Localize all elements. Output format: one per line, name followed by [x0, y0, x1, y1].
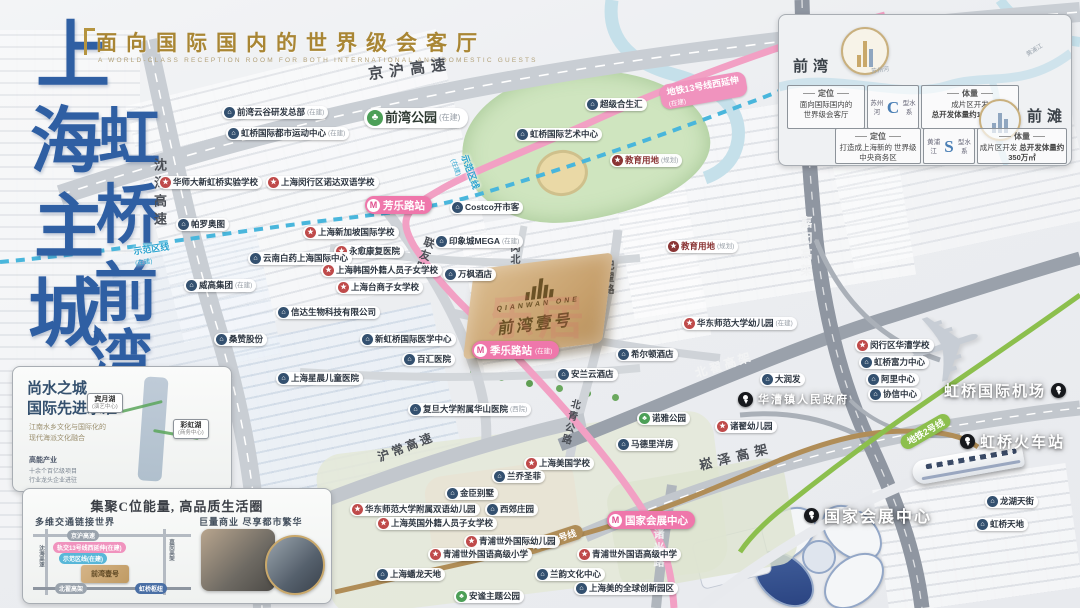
poi-name: 前湾云谷研发总部 — [237, 108, 305, 118]
lake-label: 宾月湖 (演艺中心) — [87, 393, 123, 413]
poi-school: ★青浦世外国语高级中学 — [577, 548, 681, 561]
poi-biz: ⌂协信中心 — [868, 388, 921, 401]
qianwan-water-shape: 苏州河 C 型水系 — [867, 85, 919, 129]
school-icon: ★ — [338, 282, 349, 293]
mini-label-shenhai: 沈海高速 — [37, 545, 45, 567]
school-icon: ★ — [717, 421, 728, 432]
poi-name: 上海韩国外籍人员子女学校 — [336, 266, 438, 276]
poi-name: 华东师范大学附属双语幼儿园 — [365, 505, 476, 515]
building-icon: ⌂ — [250, 253, 261, 264]
qiantan-volume: 体量 成片区开发 总开发体量约350万㎡ — [977, 128, 1067, 164]
brand-character: 主 — [34, 194, 104, 264]
poi-suffix: (在建) — [328, 130, 345, 137]
water-river-name: 苏州河 — [868, 99, 886, 118]
building-icon: ⌂ — [362, 334, 373, 345]
poi-biz: ⌂西郊庄园 — [485, 503, 538, 516]
metro-station-label: M芳乐路站 — [365, 196, 432, 214]
poi-suffix: (规划) — [661, 157, 678, 164]
poi-biz: ⌂桑赞股份 — [214, 333, 267, 346]
poi-biz: ⌂虹桥富力中心 — [859, 356, 929, 369]
poi-name: 教育用地 — [625, 156, 659, 166]
school-icon: ★ — [526, 458, 537, 469]
poi-name: 马德里洋房 — [631, 440, 674, 450]
poi-suffix: (在建) — [776, 320, 793, 327]
positioning-line: 世界级会客厅 — [788, 110, 864, 121]
poi-name: 上海美的全球创新园区 — [589, 584, 674, 594]
road-label: 嘉闵高架 — [798, 216, 815, 280]
qianwan-positioning: 定位 面向国际国内的 世界级会客厅 — [787, 85, 865, 129]
poi-biz: ⌂上海星晨儿童医院 — [276, 372, 363, 385]
poi-biz: ⌂希尔顿酒店 — [616, 348, 678, 361]
building-icon: ⌂ — [587, 99, 598, 110]
poi-school: ★青浦世外国际幼儿园 — [464, 535, 560, 548]
poi-biz: ⌂安兰云酒店 — [556, 368, 618, 381]
poi-biz: ⌂阿里中心 — [866, 373, 919, 386]
poi-name: 安谧主题公园 — [469, 592, 520, 602]
mini-label-beidi: 北翟高架 — [55, 583, 87, 594]
poi-name: 上海英国外籍人员子女学校 — [391, 519, 493, 529]
building-icon: ⌂ — [404, 354, 415, 365]
poi-park: ♣诺雅公园 — [637, 412, 690, 425]
poi-biz: ⌂虹桥国际艺术中心 — [515, 128, 602, 141]
park-suffix: (在建) — [439, 113, 460, 122]
poi-name: 永愈康复医院 — [349, 247, 400, 257]
building-icon: ⌂ — [987, 496, 998, 507]
map-canvas: ✈ QIANWAN ONE 前湾壹号 乐居 上海主城虹桥前湾 面向国际国内的世界… — [0, 0, 1080, 608]
positioning-line: 打造成上海新的 — [839, 143, 892, 152]
water-city-subtitle2: 现代海派文化融合 — [29, 435, 85, 442]
building-icon: ⌂ — [228, 128, 239, 139]
poi-school: ★上海新加坡国际学校 — [303, 226, 399, 239]
major-poi-name: 国家会展中心 — [824, 503, 932, 527]
building-icon: ⌂ — [558, 369, 569, 380]
poi-biz: ⌂万枫酒店 — [443, 268, 496, 281]
poi-school: ★上海韩国外籍人员子女学校 — [321, 264, 442, 277]
poi-name: 复旦大学附属华山医院 — [423, 405, 508, 415]
metro-icon: M — [367, 199, 380, 212]
poi-name: 阿里中心 — [881, 375, 915, 385]
lake-name: 宾月湖 — [94, 396, 115, 403]
park-label: ♣前湾公园(在建) — [364, 108, 468, 128]
poi-biz: ⌂虹桥天地 — [975, 518, 1028, 531]
building-icon: ⌂ — [436, 236, 447, 247]
poi-biz: ⌂印象城MEGA(在建) — [434, 235, 523, 248]
poi-name: 金臣别墅 — [460, 489, 494, 499]
location-pin-icon — [1051, 383, 1066, 398]
poi-name: 青浦世外国语高级小学 — [443, 550, 528, 560]
industry-head: 高能产业 — [29, 455, 57, 465]
major-poi-name: 华漕镇人民政府 — [758, 391, 849, 407]
building-icon: ⌂ — [445, 269, 456, 280]
building-icon: ⌂ — [487, 504, 498, 515]
poi-name: 协信中心 — [883, 390, 917, 400]
poi-name: 兰乔圣菲 — [507, 472, 541, 482]
poi-name: 上海闵行区诺达双语学校 — [281, 178, 375, 188]
poi-name: 百汇医院 — [417, 355, 451, 365]
poi-biz: ⌂超级合生汇 — [585, 98, 647, 111]
metro-station-label: M季乐路站(在建) — [472, 341, 559, 359]
major-poi-name: 虹桥国际机场 — [944, 380, 1046, 401]
mini-road — [33, 534, 191, 537]
mini-label-hub: 虹桥枢纽 — [135, 583, 167, 594]
poi-name: 云南白药上海国际中心 — [263, 254, 348, 264]
mini-label-jiamin: 嘉闵高架 — [167, 539, 175, 561]
mini-label-line13: 轨交13号线西延伸(在建) — [53, 542, 126, 553]
water-shape-suffix: 型水系 — [900, 99, 918, 118]
volume-head: 体量 — [922, 88, 1018, 100]
school-icon: ★ — [268, 177, 279, 188]
poi-biz: ⌂信达生物科技有限公司 — [276, 306, 380, 319]
major-poi-label: 虹桥火车站 — [960, 431, 1065, 452]
poi-name: 虹桥国际都市运动中心 — [241, 129, 326, 139]
lake-label: 彩虹湖 (商务中心) — [173, 419, 209, 439]
poi-name: 威高集团 — [199, 281, 233, 291]
commerce-photo — [201, 529, 275, 591]
volume-line: 总开发体量约350万㎡ — [1008, 143, 1064, 163]
building-icon: ⌂ — [618, 439, 629, 450]
mini-property-logo: 前湾壹号 — [81, 565, 129, 583]
poi-name: 青浦世外国际幼儿园 — [479, 537, 556, 547]
poi-name: 龙湖天街 — [1000, 497, 1034, 507]
poi-biz: ⌂百汇医院 — [402, 353, 455, 366]
poi-school: ★诸翟幼儿园 — [715, 420, 777, 433]
brand-character: 前 — [94, 262, 158, 326]
poi-school: ★上海美国学校 — [524, 457, 594, 470]
station-name: 国家会展中心 — [625, 513, 688, 528]
location-pin-icon — [960, 434, 975, 449]
major-poi-name: 虹桥火车站 — [980, 431, 1065, 452]
poi-suffix: (规划) — [717, 243, 734, 250]
commerce-photo-ring — [265, 535, 325, 595]
water-shape-letter: C — [886, 96, 900, 121]
poi-biz: ⌂大润发 — [760, 373, 805, 386]
poi-name: 教育用地 — [681, 242, 715, 252]
volume-head: 体量 — [978, 131, 1066, 143]
poi-school: ★华东师范大学附属双语幼儿园 — [350, 503, 480, 516]
major-poi-label: 国家会展中心 — [804, 503, 932, 527]
positioning-line: 面向国际国内的 — [788, 100, 864, 111]
water-shape-suffix: 型水系 — [955, 138, 974, 157]
poi-name: 万枫酒店 — [458, 270, 492, 280]
poi-name: 虹桥富力中心 — [874, 358, 925, 368]
school-icon: ★ — [323, 265, 334, 276]
building-icon: ⌂ — [977, 519, 988, 530]
building-icon: ⌂ — [410, 404, 421, 415]
poi-name: 上海美国学校 — [539, 459, 590, 469]
school-icon: ★ — [579, 549, 590, 560]
school-icon: ★ — [352, 504, 363, 515]
poi-biz: ⌂前湾云谷研发总部(在建) — [222, 106, 328, 119]
building-icon: ⌂ — [517, 129, 528, 140]
poi-name: 上海蟠龙天地 — [390, 570, 441, 580]
school-icon: ★ — [684, 318, 695, 329]
poi-biz: ⌂上海美的全球创新园区 — [574, 582, 678, 595]
station-name: 芳乐路站 — [383, 198, 425, 213]
poi-suffix: (西院) — [510, 406, 527, 413]
school-icon: ★ — [160, 177, 171, 188]
poi-biz: ⌂龙湖天街 — [985, 495, 1038, 508]
poi-name: 安兰云酒店 — [571, 370, 614, 380]
building-icon: ⌂ — [178, 219, 189, 230]
poi-school: ★闵行区华漕学校 — [855, 339, 934, 352]
building-icon: ⌂ — [224, 107, 235, 118]
metro-station-label: M国家会展中心 — [607, 511, 695, 529]
c-position-panel: 集聚C位能量, 高品质生活圈 多维交通链接世界 巨量商业 尽享都市繁华 京沪高速… — [22, 488, 332, 604]
gold-corner-mark — [84, 28, 95, 55]
qiantan-positioning: 定位 打造成上海新的 世界级中央商务区 — [835, 128, 921, 164]
mini-road — [45, 529, 48, 595]
poi-biz: ⌂兰乔圣菲 — [492, 470, 545, 483]
building-icon: ⌂ — [762, 374, 773, 385]
poi-school: ★青浦世外国语高级小学 — [428, 548, 532, 561]
poi-biz: ⌂新虹桥国际医学中心 — [360, 333, 456, 346]
poi-school: ★华师大新虹桥实验学校 — [158, 176, 262, 189]
poi-biz: ⌂威高集团(在建) — [184, 279, 256, 292]
building-icon: ⌂ — [868, 374, 879, 385]
school-icon: ★ — [466, 536, 477, 547]
building-icon: ⌂ — [447, 488, 458, 499]
poi-name: 华东师范大学幼儿园 — [697, 319, 774, 329]
building-icon: ⌂ — [278, 307, 289, 318]
location-pin-icon — [738, 392, 753, 407]
qianwan-one-logo-icon — [525, 276, 555, 300]
industry-line: 行业龙头企业进驻 — [29, 475, 77, 484]
building-icon: ⌂ — [537, 569, 548, 580]
poi-edu: ★教育用地(规划) — [610, 154, 682, 167]
poi-name: 虹桥国际艺术中心 — [530, 130, 598, 140]
poi-name: Costco开市客 — [465, 203, 519, 213]
poi-name: 上海星晨儿童医院 — [291, 374, 359, 384]
c-position-title: 集聚C位能量, 高品质生活圈 — [23, 496, 331, 515]
water-city-panel: 尚水之城 国际先进水准 江南水乡文化与国际化的 现代海派文化融合 宾月湖 (演艺… — [12, 366, 232, 492]
transport-head: 多维交通链接世界 — [35, 515, 115, 528]
industry-line: 十余个百亿级项目 — [29, 466, 77, 475]
location-pin-icon — [804, 508, 819, 523]
lake-name: 彩虹湖 — [180, 422, 201, 429]
poi-name: 兰韵文化中心 — [550, 570, 601, 580]
station-name: 季乐路站 — [490, 343, 532, 358]
positioning-head: 定位 — [788, 88, 864, 100]
school-icon: ★ — [857, 340, 868, 351]
poi-suffix: (在建) — [307, 109, 324, 116]
mini-label-jinghu: 京沪高速 — [67, 530, 99, 541]
major-poi-label: 华漕镇人民政府 — [738, 391, 849, 407]
building-icon: ⌂ — [576, 583, 587, 594]
volume-line: 成片区开发 — [980, 143, 1018, 152]
poi-name: 虹桥天地 — [990, 520, 1024, 530]
poi-suffix: (在建) — [235, 282, 252, 289]
poi-name: 桑赞股份 — [229, 335, 263, 345]
poi-biz: ⌂马德里洋房 — [616, 438, 678, 451]
poi-biz: ⌂兰韵文化中心 — [535, 568, 605, 581]
positioning-head: 定位 — [836, 131, 920, 143]
poi-name: 闵行区华漕学校 — [870, 341, 930, 351]
poi-park: ♣安谧主题公园 — [454, 590, 524, 603]
school-icon: ★ — [305, 227, 316, 238]
water-city-subtitle: 江南水乡文化与国际化的 — [29, 424, 106, 431]
poi-name: 新虹桥国际医学中心 — [375, 335, 452, 345]
lake-sub: (商务中心) — [178, 430, 204, 437]
commerce-head: 巨量商业 尽享都市繁华 — [199, 515, 303, 528]
poi-name: 希尔顿酒店 — [631, 350, 674, 360]
building-icon: ⌂ — [377, 569, 388, 580]
poi-school: ★华东师范大学幼儿园(在建) — [682, 317, 797, 330]
qianwan-name: 前湾 — [793, 55, 833, 76]
poi-school: ★上海台商子女学校 — [336, 281, 423, 294]
poi-biz: ⌂虹桥国际都市运动中心(在建) — [226, 127, 349, 140]
tree-icon: ♣ — [367, 110, 383, 126]
poi-name: 华师大新虹桥实验学校 — [173, 178, 258, 188]
education-icon: ★ — [612, 155, 623, 166]
building-icon: ⌂ — [494, 471, 505, 482]
education-icon: ★ — [668, 241, 679, 252]
poi-school: ★上海英国外籍人员子女学校 — [376, 517, 497, 530]
poi-school: ★上海闵行区诺达双语学校 — [266, 176, 379, 189]
station-suffix: (在建) — [535, 345, 552, 355]
poi-biz: ⌂帕罗奥图 — [176, 218, 229, 231]
poi-biz: ⌂上海蟠龙天地 — [375, 568, 445, 581]
poi-biz: ⌂金臣别墅 — [445, 487, 498, 500]
water-shape-letter: S — [943, 135, 954, 160]
building-icon: ⌂ — [870, 389, 881, 400]
poi-suffix: (在建) — [502, 238, 519, 245]
poi-name: 诸翟幼儿园 — [730, 422, 773, 432]
poi-name: 上海新加坡国际学校 — [318, 228, 395, 238]
poi-name: 上海台商子女学校 — [351, 283, 419, 293]
building-icon: ⌂ — [278, 373, 289, 384]
major-poi-label: 虹桥国际机场 — [944, 380, 1066, 401]
building-icon: ⌂ — [618, 349, 629, 360]
school-icon: ★ — [430, 549, 441, 560]
poi-name: 信达生物科技有限公司 — [291, 308, 376, 318]
mini-label-demoline: 示范区线(在建) — [59, 553, 107, 564]
poi-name: 诺雅公园 — [652, 414, 686, 424]
metro-icon: M — [474, 344, 487, 357]
building-icon: ⌂ — [861, 357, 872, 368]
tree-icon: ♣ — [639, 413, 650, 424]
water-city-title: 尚水之城 — [27, 381, 87, 397]
poi-name: 超级合生汇 — [600, 100, 643, 110]
poi-name: 印象城MEGA — [449, 237, 500, 247]
page-subtitle-en: A WORLD-CLASS RECEPTION ROOM FOR BOTH IN… — [98, 57, 538, 64]
building-icon: ⌂ — [452, 202, 463, 213]
road-label: 沈海高速 — [150, 158, 169, 230]
qiantan-name: 前滩 — [1027, 105, 1067, 126]
qiantan-water-shape: 黄浦江 S 型水系 — [923, 128, 975, 164]
park-name: 前湾公园 — [385, 111, 437, 126]
poi-biz: ⌂复旦大学附属华山医院(西院) — [408, 403, 531, 416]
poi-name: 青浦世外国语高级中学 — [592, 550, 677, 560]
qianwan-qiantan-panel: 苏州河 黄浦江 前湾 定位 面向国际国内的 世界级会客厅 苏州河 C 型水系 体… — [778, 14, 1072, 166]
page-title: 面向国际国内的世界级会客厅 — [96, 27, 486, 57]
poi-name: 帕罗奥图 — [191, 220, 225, 230]
poi-biz: ⌂Costco开市客 — [450, 201, 523, 214]
brand-character: 海 — [30, 106, 102, 178]
poi-edu: ★教育用地(规划) — [666, 240, 738, 253]
tree-icon: ♣ — [456, 591, 467, 602]
school-icon: ★ — [378, 518, 389, 529]
metro-icon: M — [609, 514, 622, 527]
building-icon: ⌂ — [216, 334, 227, 345]
poi-name: 大润发 — [775, 375, 801, 385]
lake-sub: (演艺中心) — [92, 404, 118, 411]
poi-name: 西郊庄园 — [500, 505, 534, 515]
water-river-name: 黄浦江 — [924, 138, 943, 157]
building-icon: ⌂ — [186, 280, 197, 291]
